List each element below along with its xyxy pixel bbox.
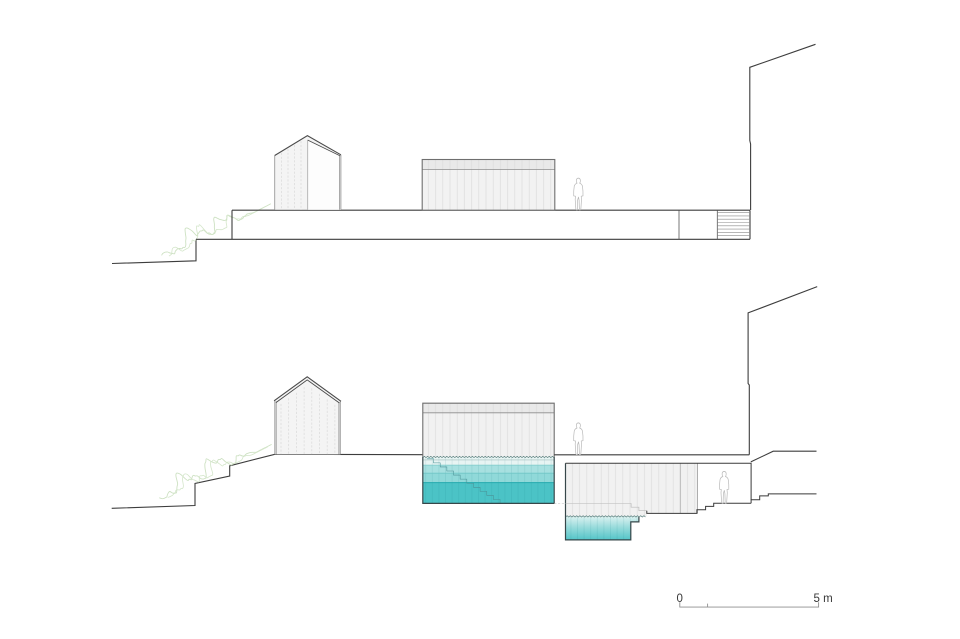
svg-text:0: 0	[677, 593, 683, 605]
svg-text:5 m: 5 m	[814, 593, 833, 605]
